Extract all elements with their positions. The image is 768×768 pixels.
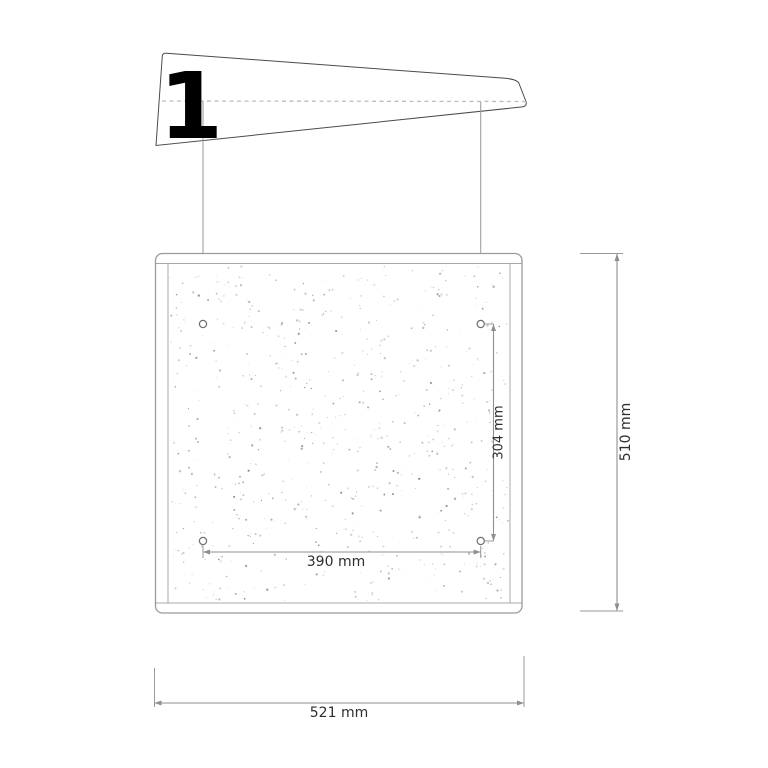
- speckle-dot: [190, 345, 192, 347]
- speckle-dot: [452, 532, 454, 534]
- speckle-dot: [325, 500, 326, 501]
- speckle-dot: [322, 574, 324, 576]
- speckle-dot: [472, 364, 473, 365]
- speckle-dot: [332, 453, 333, 454]
- speckle-dot: [204, 532, 206, 534]
- speckle-dot: [368, 486, 370, 488]
- speckle-dot: [327, 417, 328, 418]
- speckle-dot: [229, 286, 230, 287]
- speckle-dot: [452, 444, 454, 446]
- speckle-dot: [484, 563, 486, 565]
- speckle-dot: [217, 319, 219, 321]
- speckle-dot: [207, 299, 209, 301]
- speckle-dot: [488, 409, 490, 411]
- speckle-dot: [218, 477, 220, 479]
- speckle-dot: [435, 569, 436, 570]
- speckle-dot: [175, 587, 177, 589]
- speckle-dot: [277, 363, 279, 365]
- speckle-dot: [393, 300, 395, 302]
- speckle-dot: [423, 405, 425, 407]
- speckle-dot: [409, 363, 410, 364]
- speckle-dot: [409, 455, 411, 457]
- speckle-dot: [178, 327, 180, 329]
- speckle-dot: [307, 432, 308, 433]
- speckle-dot: [430, 579, 431, 580]
- speckle-dot: [499, 519, 501, 521]
- speckle-dot: [379, 391, 381, 393]
- speckle-dot: [197, 441, 199, 443]
- speckle-dot: [376, 462, 378, 464]
- speckle-dot: [359, 541, 360, 542]
- speckle-dot: [195, 506, 197, 508]
- speckle-dot: [504, 494, 506, 496]
- speckle-dot: [381, 371, 383, 373]
- speckle-dot: [391, 568, 393, 570]
- speckle-dot: [447, 329, 449, 331]
- speckle-dot: [496, 352, 497, 353]
- speckle-dot: [316, 573, 318, 575]
- speckle-dot: [195, 438, 197, 440]
- speckle-dot: [297, 361, 298, 362]
- speckle-dot: [375, 466, 377, 468]
- speckle-dot: [459, 334, 460, 335]
- speckle-dot: [285, 346, 286, 347]
- speckle-dot: [294, 427, 295, 428]
- speckle-dot: [362, 402, 364, 404]
- speckle-dot: [374, 469, 376, 471]
- speckle-dot: [440, 398, 442, 400]
- speckle-dot: [482, 308, 484, 310]
- speckle-dot: [303, 283, 304, 284]
- speckle-dot: [398, 568, 400, 570]
- speckle-dot: [463, 497, 464, 498]
- speckle-dot: [320, 428, 321, 429]
- speckle-dot: [438, 513, 439, 514]
- speckle-dot: [169, 277, 171, 279]
- speckle-dot: [270, 355, 271, 356]
- speckle-dot: [472, 476, 474, 478]
- speckle-dot: [239, 476, 241, 478]
- speckle-dot: [233, 327, 234, 328]
- speckle-dot: [438, 289, 439, 290]
- speckle-dot: [254, 588, 255, 589]
- speckle-dot: [248, 470, 250, 472]
- speckle-dot: [486, 325, 488, 327]
- speckle-dot: [242, 481, 244, 483]
- speckle-dot: [218, 598, 220, 600]
- speckle-dot: [361, 278, 362, 279]
- speckle-dot: [467, 515, 468, 516]
- speckle-dot: [274, 554, 276, 556]
- speckle-dot: [390, 305, 391, 306]
- speckle-dot: [213, 591, 214, 592]
- speckle-dot: [243, 591, 244, 592]
- speckle-dot: [355, 596, 357, 598]
- speckle-dot: [240, 266, 242, 268]
- speckle-dot: [285, 523, 286, 524]
- speckle-dot: [356, 491, 357, 492]
- speckle-dot: [196, 468, 197, 469]
- speckle-dot: [431, 451, 433, 453]
- speckle-dot: [413, 365, 415, 367]
- speckle-dot: [304, 438, 305, 439]
- speckle-dot: [423, 322, 425, 324]
- speckle-dot: [448, 393, 449, 394]
- speckle-dot: [178, 550, 179, 551]
- speckle-dot: [301, 445, 303, 447]
- speckle-dot: [231, 560, 232, 561]
- speckle-dot: [266, 589, 268, 591]
- speckle-dot: [387, 446, 389, 448]
- speckle-dot: [489, 401, 490, 402]
- speckle-dot: [298, 431, 300, 433]
- speckle-dot: [238, 432, 240, 434]
- speckle-dot: [242, 494, 244, 496]
- speckle-dot: [427, 450, 428, 451]
- speckle-dot: [396, 555, 398, 557]
- speckle-dot: [196, 418, 198, 420]
- speckle-dot: [367, 354, 368, 355]
- speckle-dot: [359, 447, 360, 448]
- speckle-dot: [307, 518, 308, 519]
- speckle-dot: [316, 528, 318, 530]
- speckle-dot: [363, 390, 364, 391]
- technical-drawing-canvas: 1 304 mm 390 mm: [0, 0, 768, 768]
- speckle-dot: [189, 548, 190, 549]
- speckle-dot: [453, 380, 455, 382]
- speckle-dot: [341, 352, 343, 354]
- speckle-dot: [276, 326, 277, 327]
- speckle-dot: [376, 320, 377, 321]
- speckle-dot: [489, 412, 491, 414]
- speckle-dot: [179, 347, 181, 349]
- speckle-dot: [472, 504, 473, 505]
- speckle-dot: [373, 531, 375, 533]
- speckle-dot: [446, 294, 448, 296]
- speckle-dot: [176, 532, 177, 533]
- speckle-dot: [298, 333, 300, 335]
- speckle-dot: [335, 417, 336, 418]
- speckle-dot: [477, 305, 478, 306]
- speckle-dot: [220, 301, 222, 303]
- speckle-dot: [259, 534, 261, 536]
- speckle-dot: [354, 365, 355, 366]
- speckle-dot: [352, 512, 354, 514]
- speckle-dot: [455, 515, 456, 516]
- speckle-dot: [219, 281, 220, 282]
- speckle-dot: [345, 429, 347, 431]
- speckle-dot: [306, 509, 307, 510]
- speckle-dot: [356, 374, 358, 376]
- speckle-dot: [439, 295, 441, 297]
- speckle-dot: [400, 371, 401, 372]
- speckle-dot: [458, 349, 459, 350]
- speckle-dot: [465, 467, 467, 469]
- speckle-dot: [233, 509, 235, 511]
- speckle-dot: [380, 510, 382, 512]
- speckle-dot: [218, 298, 220, 300]
- speckle-dot: [306, 383, 307, 384]
- speckle-dot: [184, 322, 185, 323]
- speckle-dot: [219, 588, 221, 590]
- speckle-dot: [311, 495, 312, 496]
- speckle-dot: [446, 266, 447, 267]
- speckle-dot: [183, 319, 185, 321]
- speckle-dot: [320, 471, 321, 472]
- speckle-dot: [324, 571, 325, 572]
- speckle-dot: [253, 501, 254, 502]
- speckle-dot: [313, 299, 315, 301]
- speckle-dot: [194, 521, 195, 522]
- speckle-dot: [186, 365, 187, 366]
- speckle-dot: [318, 422, 320, 424]
- speckle-dot: [435, 590, 436, 591]
- speckle-dot: [357, 451, 358, 452]
- speckle-dot: [255, 533, 257, 535]
- speckle-dot: [202, 335, 203, 336]
- speckle-dot: [294, 342, 296, 344]
- speckle-dot: [262, 332, 263, 333]
- speckle-dot: [487, 542, 489, 544]
- speckle-dot: [364, 294, 365, 295]
- speckle-dot: [477, 487, 478, 488]
- speckle-dot: [221, 556, 223, 558]
- speckle-dot: [304, 584, 306, 586]
- speckle-dot: [372, 594, 373, 595]
- speckle-dot: [233, 410, 234, 411]
- speckle-dot: [244, 322, 246, 324]
- speckle-dot: [323, 462, 325, 464]
- speckle-dot: [485, 598, 486, 599]
- speckle-dot: [474, 562, 475, 563]
- speckle-dot: [490, 583, 492, 585]
- speckle-dot: [402, 573, 403, 574]
- speckle-dot: [499, 272, 501, 274]
- speckle-dot: [416, 549, 417, 550]
- speckle-dot: [379, 423, 380, 424]
- speckle-dot: [491, 284, 492, 285]
- speckle-dot: [198, 294, 200, 296]
- speckle-dot: [383, 338, 385, 340]
- speckle-dot: [491, 390, 493, 392]
- speckle-dot: [373, 284, 375, 286]
- speckle-dot: [483, 372, 485, 374]
- speckle-dot: [411, 531, 413, 533]
- speckle-dot: [414, 453, 415, 454]
- speckle-dot: [323, 280, 324, 281]
- speckle-dot: [222, 488, 223, 489]
- speckle-dot: [411, 473, 413, 475]
- speckle-dot: [176, 294, 178, 296]
- speckle-dot: [439, 469, 440, 470]
- speckle-dot: [285, 500, 286, 501]
- speckle-dot: [345, 519, 346, 520]
- speckle-dot: [309, 379, 311, 381]
- speckle-dot: [380, 437, 382, 439]
- speckle-dot: [302, 309, 304, 311]
- speckle-dot: [419, 362, 420, 363]
- speckle-dot: [487, 582, 489, 584]
- dim-label-304: 304 mm: [492, 405, 507, 459]
- speckle-dot: [416, 359, 418, 361]
- speckle-dot: [241, 327, 243, 329]
- speckle-dot: [235, 285, 237, 287]
- speckle-dot: [228, 456, 230, 458]
- speckle-dot: [397, 299, 399, 301]
- speckle-dot: [464, 513, 466, 515]
- speckle-dot: [502, 568, 504, 570]
- speckle-dot: [343, 275, 345, 277]
- speckle-dot: [264, 518, 265, 519]
- speckle-dot: [343, 396, 344, 397]
- speckle-dot: [366, 600, 367, 601]
- speckle-dot: [260, 385, 262, 387]
- speckle-dot: [332, 403, 334, 405]
- speckle-dot: [332, 289, 334, 291]
- speckle-dot: [266, 528, 267, 529]
- speckle-dot: [288, 459, 289, 460]
- speckle-dot: [364, 285, 365, 286]
- speckle-dot: [308, 463, 309, 464]
- speckle-dot: [417, 415, 419, 417]
- speckle-dot: [484, 556, 486, 558]
- speckle-dot: [367, 406, 369, 408]
- speckle-dot: [311, 432, 313, 434]
- dim-label-510: 510 mm: [618, 403, 634, 461]
- speckle-dot: [297, 503, 299, 505]
- speckle-dot: [259, 401, 260, 402]
- speckle-dot: [415, 488, 416, 489]
- speckle-dot: [253, 543, 254, 544]
- speckle-dot: [452, 389, 454, 391]
- speckle-dot: [461, 395, 463, 397]
- speckle-dot: [491, 490, 492, 491]
- speckle-dot: [385, 275, 386, 276]
- speckle-dot: [244, 598, 246, 600]
- arrowhead-down: [615, 604, 620, 612]
- speckle-dot: [234, 413, 235, 414]
- speckle-dot: [205, 559, 206, 560]
- speckle-dot: [280, 390, 281, 391]
- speckle-dot: [300, 309, 302, 311]
- speckle-dot: [431, 287, 432, 288]
- speckle-dot: [296, 414, 298, 416]
- speckle-dot: [490, 580, 491, 581]
- speckle-dot: [446, 346, 447, 347]
- speckle-dot: [223, 323, 225, 325]
- speckle-dot: [475, 298, 477, 300]
- speckle-dot: [183, 552, 185, 554]
- speckle-dot: [232, 417, 233, 418]
- speckle-dot: [212, 545, 214, 547]
- speckle-dot: [473, 398, 475, 400]
- speckle-dot: [176, 314, 177, 315]
- speckle-dot: [261, 500, 262, 501]
- speckle-dot: [483, 578, 485, 580]
- speckle-dot: [397, 472, 399, 474]
- speckle-dot: [341, 316, 343, 318]
- speckle-dot: [268, 493, 269, 494]
- speckle-dot: [359, 305, 361, 307]
- speckle-dot: [418, 516, 420, 518]
- mounting-hole-bottom-left: [199, 537, 206, 544]
- speckle-dot: [170, 341, 172, 343]
- dim-label-521: 521 mm: [310, 705, 368, 721]
- speckle-dot: [368, 321, 370, 323]
- speckle-dot: [402, 470, 403, 471]
- speckle-dot: [487, 469, 488, 470]
- speckle-dot: [248, 301, 250, 303]
- speckle-dot: [180, 330, 182, 332]
- speckle-dot: [197, 390, 198, 391]
- speckle-dot: [392, 493, 394, 495]
- speckle-dot: [228, 427, 229, 428]
- speckle-dot: [428, 455, 430, 457]
- dimension-panel-width: 521 mm: [155, 656, 525, 721]
- speckle-dot: [367, 279, 368, 280]
- speckle-dot: [387, 435, 388, 436]
- speckle-dot: [251, 305, 253, 307]
- speckle-dot: [336, 533, 337, 534]
- speckle-dot: [500, 589, 502, 591]
- speckle-dot: [191, 473, 192, 474]
- speckle-dot: [404, 422, 406, 424]
- speckle-dot: [416, 537, 418, 539]
- speckle-dot: [284, 359, 285, 360]
- speckle-dot: [440, 510, 442, 512]
- speckle-dot: [370, 373, 372, 375]
- speckle-dot: [507, 520, 509, 522]
- speckle-dot: [384, 357, 386, 359]
- speckle-dot: [462, 403, 463, 404]
- speckle-dot: [445, 280, 446, 281]
- speckle-dot: [499, 326, 501, 328]
- speckle-dot: [183, 561, 185, 563]
- speckle-dot: [255, 375, 256, 376]
- speckle-dot: [328, 539, 329, 540]
- speckle-dot: [195, 277, 196, 278]
- speckle-dot: [464, 275, 466, 277]
- speckle-dot: [235, 294, 237, 296]
- speckle-dot: [503, 380, 504, 381]
- speckle-dot: [196, 484, 198, 486]
- speckle-dot: [301, 353, 303, 355]
- speckle-dot: [175, 503, 176, 504]
- speckle-dot: [335, 330, 337, 332]
- speckle-dot: [502, 277, 503, 278]
- speckle-dot: [174, 549, 175, 550]
- speckle-dot: [348, 449, 350, 451]
- speckle-dot: [188, 408, 189, 409]
- speckle-dot: [246, 311, 247, 312]
- speckle-dot: [228, 267, 230, 269]
- speckle-dot: [448, 438, 450, 440]
- speckle-dot: [354, 591, 356, 593]
- speckle-dot: [442, 270, 444, 272]
- speckle-dot: [426, 389, 428, 391]
- speckle-dot: [198, 276, 199, 277]
- speckle-dot: [233, 411, 234, 412]
- speckle-dot: [321, 314, 323, 316]
- speckle-dot: [171, 501, 172, 502]
- speckle-dot: [284, 600, 286, 602]
- speckle-dot: [323, 442, 325, 444]
- speckle-dot: [371, 434, 372, 435]
- speckle-dot: [236, 514, 238, 516]
- speckle-dot: [428, 442, 429, 443]
- speckle-dot: [462, 384, 463, 385]
- speckle-dot: [437, 430, 439, 432]
